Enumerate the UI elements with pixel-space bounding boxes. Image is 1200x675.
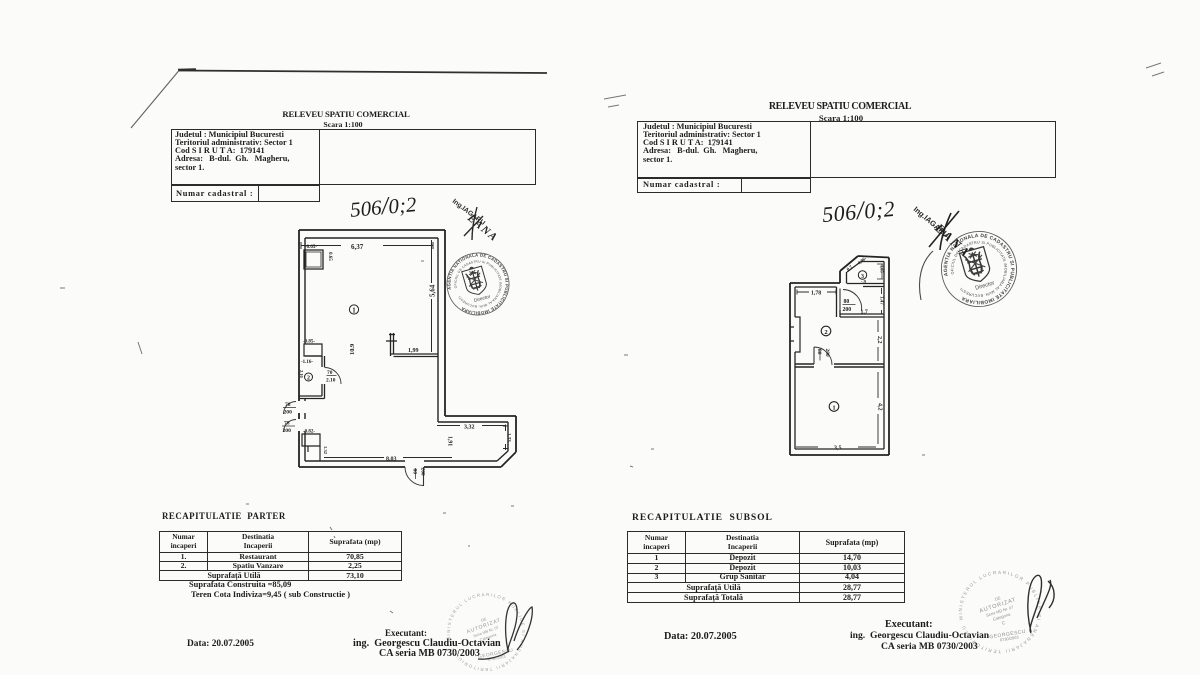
svg-text:200: 200 bbox=[283, 428, 292, 434]
svg-text:Ing.IAGARU: Ing.IAGARU bbox=[451, 198, 486, 227]
svg-text:Categoria: Categoria bbox=[992, 611, 1011, 622]
svg-text:2: 2 bbox=[824, 329, 828, 336]
svg-text:-0.65-: -0.65- bbox=[305, 245, 317, 250]
svg-text:1: 1 bbox=[352, 307, 356, 314]
svg-text:80: 80 bbox=[816, 349, 822, 355]
svg-text:1,47: 1,47 bbox=[879, 296, 884, 305]
svg-text:200: 200 bbox=[824, 349, 830, 357]
svg-text:4,2: 4,2 bbox=[877, 403, 883, 411]
svg-text:Ing.IAGARU: Ing.IAGARU bbox=[912, 205, 951, 240]
svg-text:1,91: 1,91 bbox=[447, 436, 453, 446]
svg-text:DE: DE bbox=[994, 595, 1001, 602]
svg-text:-1.16-: -1.16- bbox=[301, 360, 313, 365]
svg-text:200: 200 bbox=[420, 468, 426, 476]
svg-text:AGENTIA NATIONALA DE CADASTRU: AGENTIA NATIONALA DE CADASTRU SI PUBLICI… bbox=[439, 245, 517, 323]
svg-text:5,64: 5,64 bbox=[429, 284, 437, 297]
svg-text:78: 78 bbox=[284, 421, 290, 427]
svg-text:2.10: 2.10 bbox=[326, 378, 336, 384]
svg-text:70: 70 bbox=[327, 370, 333, 376]
svg-text:1.32: 1.32 bbox=[323, 446, 328, 455]
svg-text:-0.82-: -0.82- bbox=[303, 430, 315, 435]
svg-text:0730/2003: 0730/2003 bbox=[999, 634, 1019, 642]
svg-text:0,7: 0,7 bbox=[846, 264, 854, 272]
svg-text:1,33: 1,33 bbox=[506, 433, 511, 442]
svg-text:2,2: 2,2 bbox=[876, 336, 882, 344]
svg-text:1,7: 1,7 bbox=[861, 310, 868, 316]
svg-text:EANA: EANA bbox=[464, 211, 500, 244]
svg-text:1: 1 bbox=[832, 405, 835, 412]
svg-text:AGENTIA NATIONALA DE CADASTRU: AGENTIA NATIONALA DE CADASTRU SI PUBLICI… bbox=[934, 224, 1023, 313]
svg-text:3,32: 3,32 bbox=[464, 425, 475, 431]
svg-text:-.9: -.9 bbox=[861, 279, 867, 284]
svg-text:AUTORIZAT: AUTORIZAT bbox=[979, 597, 1017, 615]
svg-text:0.65: 0.65 bbox=[327, 252, 332, 261]
svg-text:EANA: EANA bbox=[931, 220, 974, 261]
svg-text:78: 78 bbox=[285, 402, 291, 408]
svg-text:Seria MD Nr. 07: Seria MD Nr. 07 bbox=[985, 604, 1014, 618]
svg-text:200: 200 bbox=[843, 307, 852, 313]
svg-text:DE: DE bbox=[480, 616, 487, 623]
svg-text:2: 2 bbox=[307, 376, 310, 382]
svg-text:3: 3 bbox=[861, 274, 864, 280]
svg-text:MINISTERUL LUCRARILOR PUBLICE: MINISTERUL LUCRARILOR PUBLICE SI AMENAJA… bbox=[435, 581, 538, 675]
svg-text:Director: Director bbox=[975, 280, 996, 291]
svg-text:1,05: 1,05 bbox=[880, 265, 885, 273]
svg-text:C: C bbox=[1001, 620, 1006, 626]
svg-text:80: 80 bbox=[844, 299, 850, 305]
svg-text:8,03: 8,03 bbox=[386, 457, 397, 463]
svg-text:3,5: 3,5 bbox=[834, 446, 842, 452]
svg-text:Director: Director bbox=[473, 294, 491, 305]
svg-text:80: 80 bbox=[412, 469, 418, 475]
svg-text:Seria MB Nr. 07: Seria MB Nr. 07 bbox=[473, 626, 500, 639]
svg-text:-0,96-: -0,96- bbox=[856, 255, 868, 266]
svg-text:6,37: 6,37 bbox=[351, 243, 364, 251]
svg-text:1,78: 1,78 bbox=[811, 291, 821, 297]
svg-text:AUTORIZAT: AUTORIZAT bbox=[466, 617, 502, 635]
svg-text:10.9: 10.9 bbox=[349, 344, 356, 355]
svg-text:GEORGESCU: GEORGESCU bbox=[478, 647, 514, 660]
svg-text:OFICIUL DE CADASTRU SI PUBLICI: OFICIUL DE CADASTRU SI PUBLICITATE IMOBI… bbox=[944, 234, 1015, 305]
svg-text:0730/2003: 0730/2003 bbox=[487, 655, 505, 662]
svg-text:2.10: 2.10 bbox=[299, 370, 304, 378]
svg-text:200: 200 bbox=[284, 410, 293, 416]
svg-text:OFICIUL DE CADASTRU SI PUBLICI: OFICIUL DE CADASTRU SI PUBLICITATE IMOBI… bbox=[448, 254, 509, 315]
svg-text:1,99: 1,99 bbox=[408, 348, 419, 354]
svg-text:GEORGESCU: GEORGESCU bbox=[989, 629, 1026, 641]
svg-text:-0.85-: -0.85- bbox=[303, 340, 315, 345]
